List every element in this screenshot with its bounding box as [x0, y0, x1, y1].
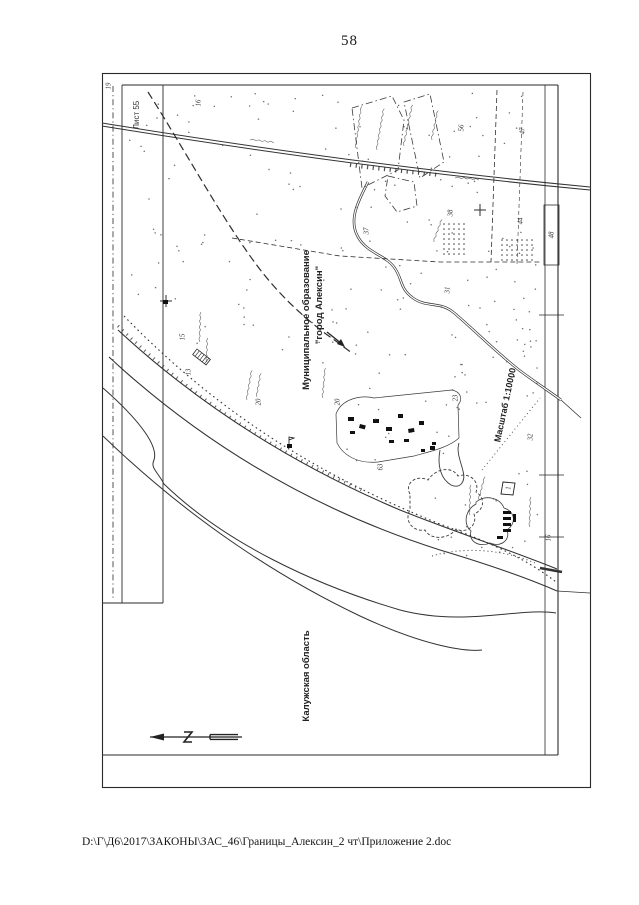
- svg-text:16: 16: [195, 99, 202, 106]
- svg-text:56: 56: [458, 124, 465, 131]
- label-arrow: [327, 332, 345, 347]
- road-line: [354, 182, 581, 470]
- svg-text:37: 37: [363, 227, 370, 235]
- buildings: [163, 300, 516, 539]
- field-parcels: [352, 94, 444, 212]
- map-label-region: Калужская область: [301, 630, 312, 721]
- map-frame: [102, 74, 591, 788]
- svg-text:15: 15: [179, 333, 186, 340]
- svg-text:19: 19: [105, 82, 112, 89]
- north-arrow-icon: [150, 732, 242, 742]
- footer-file-path: D:\Г\Д6\2017\ЗАКОНЫ\ЗАС_46\Границы_Алекс…: [82, 836, 451, 848]
- flag-building: [287, 437, 294, 448]
- map-label-municipality-1: Муниципальное образование: [301, 250, 312, 390]
- svg-text:38: 38: [447, 209, 454, 217]
- river-lines: [103, 316, 590, 650]
- svg-text:32: 32: [527, 433, 534, 441]
- document-page: { "page": { "number": "58", "footer_path…: [0, 0, 639, 905]
- svg-text:20: 20: [334, 398, 341, 405]
- svg-text:44: 44: [517, 217, 524, 224]
- svg-text:13: 13: [185, 368, 192, 375]
- svg-text:63: 63: [377, 463, 384, 470]
- map-label-scale: Масштаб 1:10000: [492, 367, 518, 443]
- railway-line: [102, 123, 590, 190]
- svg-text:20: 20: [255, 398, 262, 405]
- map-figure: 19165647373844483120202363151332161 Муни…: [0, 0, 639, 905]
- illegible-microtext: [199, 105, 531, 527]
- settlement-outline: [336, 390, 461, 462]
- svg-text:31: 31: [444, 287, 451, 295]
- municipal-boundary: [148, 90, 540, 353]
- svg-text:48: 48: [548, 231, 555, 238]
- orchard-dots: [443, 223, 533, 261]
- svg-text:47: 47: [519, 127, 526, 134]
- map-label-sheet: Лист 55: [132, 100, 141, 129]
- svg-text:23: 23: [452, 394, 459, 401]
- svg-text:16: 16: [545, 534, 552, 541]
- map-label-municipality-2: "город Алексин": [314, 266, 325, 344]
- islands: [408, 443, 535, 563]
- hatched-building: [193, 349, 211, 365]
- svg-text:1: 1: [505, 486, 512, 489]
